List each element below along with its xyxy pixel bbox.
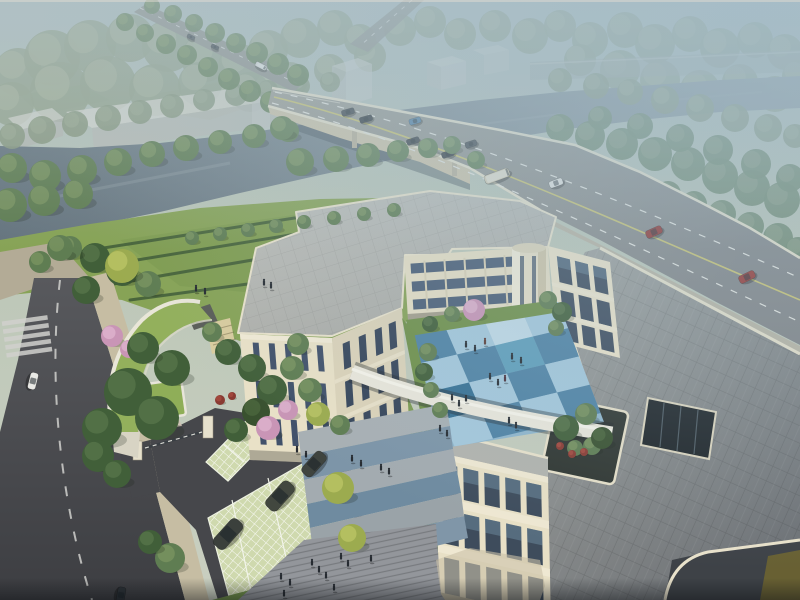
architectural-rendering xyxy=(0,0,800,600)
aerial-rendering-canvas xyxy=(0,0,800,600)
fog-overlay-corner xyxy=(0,0,800,600)
bottom-shadow xyxy=(0,578,800,600)
top-edge-line xyxy=(0,0,800,2)
